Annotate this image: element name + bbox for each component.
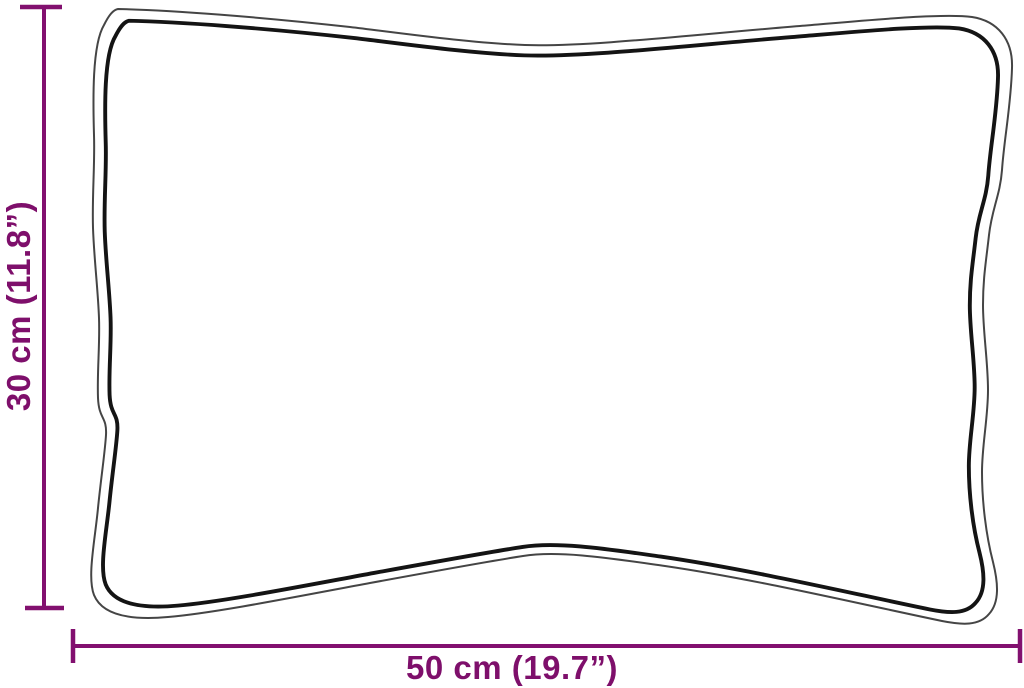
pillow-inner-outline: [103, 21, 998, 612]
height-dimension-label: 30 cm (11.8”): [0, 0, 40, 612]
dimension-diagram: [0, 0, 1024, 688]
dimension-diagram-canvas: 30 cm (11.8”) 50 cm (19.7”): [0, 0, 1024, 688]
width-dimension-label: 50 cm (19.7”): [0, 651, 1024, 688]
pillow-outer-outline: [91, 9, 1012, 624]
